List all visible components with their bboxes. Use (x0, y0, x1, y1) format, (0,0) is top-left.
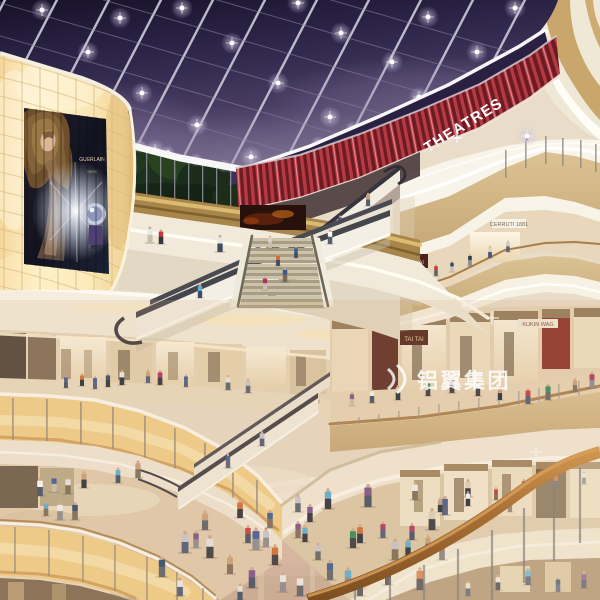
svg-text:GUERLAIN: GUERLAIN (79, 157, 105, 163)
svg-text:铝翼集团: 铝翼集团 (417, 369, 511, 393)
svg-text:CERRUTI 1881: CERRUTI 1881 (490, 222, 528, 228)
